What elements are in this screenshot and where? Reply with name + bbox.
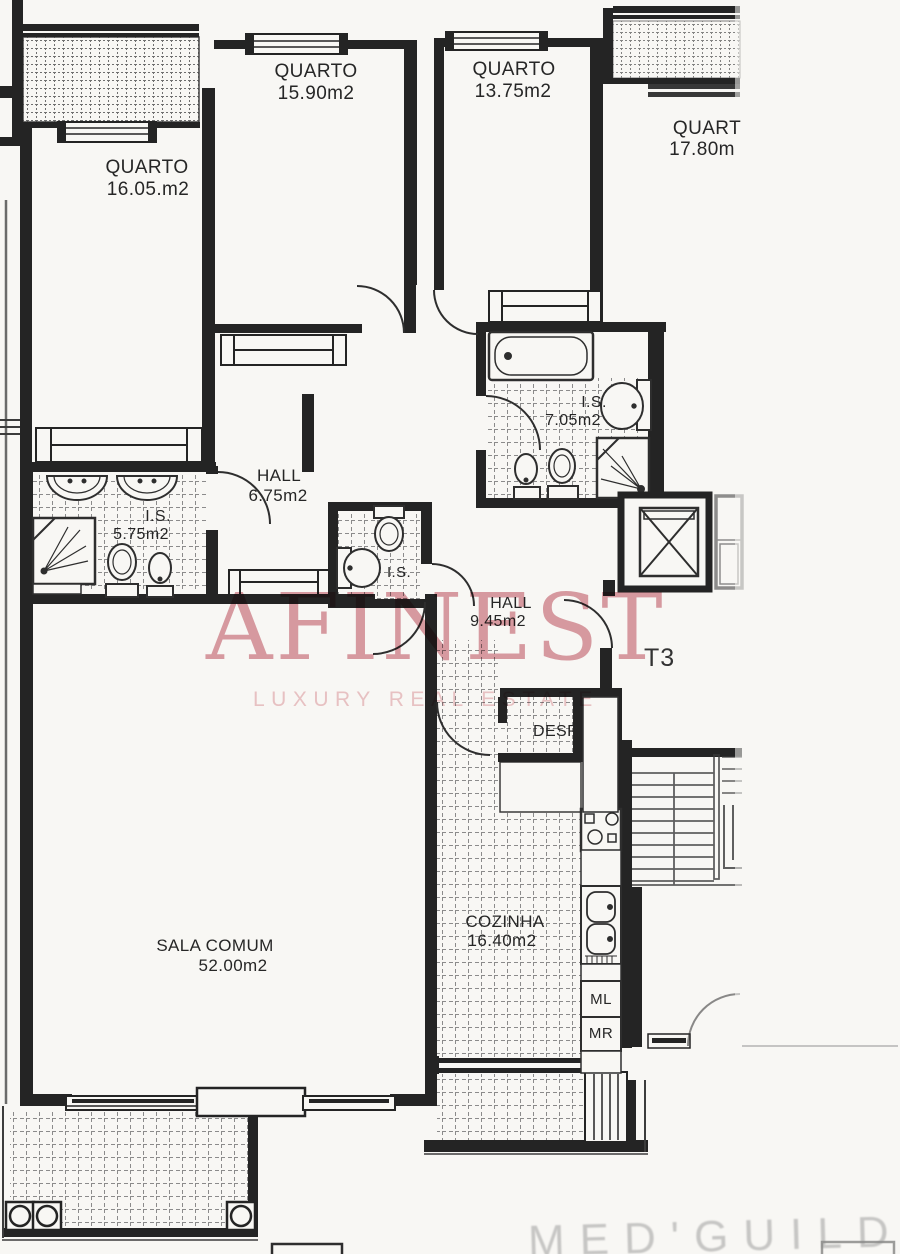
sala-pillar [197, 1088, 305, 1116]
window-quarto-1375 [446, 32, 547, 50]
label-sala-name: SALA COMUM [156, 937, 273, 954]
label-quarto-1375-name: QUARTO [473, 60, 556, 79]
label-washing-machine: ML [590, 992, 612, 1007]
label-is-705-name: I.S. [581, 395, 607, 411]
door-neighbor [688, 994, 740, 1046]
label-quarto-1780-name: QUART [673, 119, 741, 138]
stair-railing [714, 755, 719, 879]
label-sala-area: 52.00m2 [199, 957, 268, 974]
label-is-705-area: 7.05m2 [545, 413, 601, 429]
bathroom-575-toilet [106, 544, 138, 597]
door-quarto-1375 [434, 290, 478, 334]
kitchen-balcony-floor [437, 1074, 585, 1140]
label-cozinha-area: 16.40m2 [468, 932, 537, 949]
label-hall-675-area: 6.75m2 [248, 487, 307, 504]
label-quarto-1590-name: QUARTO [275, 62, 358, 81]
kitchen-sink [581, 886, 621, 964]
label-quarto-1375-area: 13.75m2 [475, 82, 552, 101]
closet-quarto-1590 [221, 335, 346, 365]
label-cozinha-name: COZINHA [465, 913, 544, 930]
scan-fade [735, 0, 900, 1254]
bathroom-705-shower [597, 438, 649, 498]
kitchen-counter-low [581, 964, 621, 981]
stove [581, 809, 621, 851]
stairs [632, 755, 742, 885]
window-quarto-1590 [246, 34, 347, 54]
label-quarto-1605-area: 16.05.m2 [107, 180, 189, 199]
closet-quarto-1605 [36, 428, 202, 462]
window-sala-right [303, 1096, 395, 1110]
bathtub [489, 332, 593, 380]
balcony-top-left-floor [23, 37, 199, 122]
balcony-top-right-floor [613, 21, 740, 78]
door-quarto-1590 [357, 286, 404, 333]
watermark-brand: AFINEST [206, 574, 666, 681]
label-quarto-1605-name: QUARTO [106, 158, 189, 177]
label-is-575-area: 5.75m2 [113, 527, 169, 543]
wc-toilet [374, 506, 404, 551]
floor-plan-page: QUARTO 15.90m2 QUARTO 13.75m2 QUARTO 16.… [0, 0, 900, 1254]
kitchen-tall-unit [583, 697, 618, 812]
kitchen-counter [500, 762, 581, 812]
closet-quarto-1375 [489, 291, 601, 322]
window-quarto-1780 [648, 84, 740, 97]
label-dryer: MR [589, 1026, 613, 1041]
bathroom-705-sink [601, 380, 651, 430]
window-quarto-1605 [58, 122, 156, 142]
window-sala-left [66, 1096, 200, 1110]
label-hall-675-name: HALL [257, 467, 301, 484]
kitchen-balcony-window [585, 1072, 627, 1142]
window-sill-right [648, 1034, 690, 1048]
bathroom-705-toilet [548, 449, 578, 499]
kitchen-counter-mid [581, 850, 621, 886]
label-is-575-name: I.S. [145, 509, 171, 525]
bathroom-575-shower [33, 518, 95, 594]
kitchen-counter-end [581, 1051, 621, 1073]
label-despensa: DESP. [533, 724, 581, 740]
label-quarto-1590-area: 15.90m2 [278, 84, 355, 103]
bathroom-705-bidet [514, 454, 540, 499]
bathroom-575-bidet [147, 553, 173, 597]
label-quarto-1780-area: 17.80m [669, 140, 735, 159]
watermark-tagline: LUXURY REAL ESTATE [253, 688, 599, 712]
